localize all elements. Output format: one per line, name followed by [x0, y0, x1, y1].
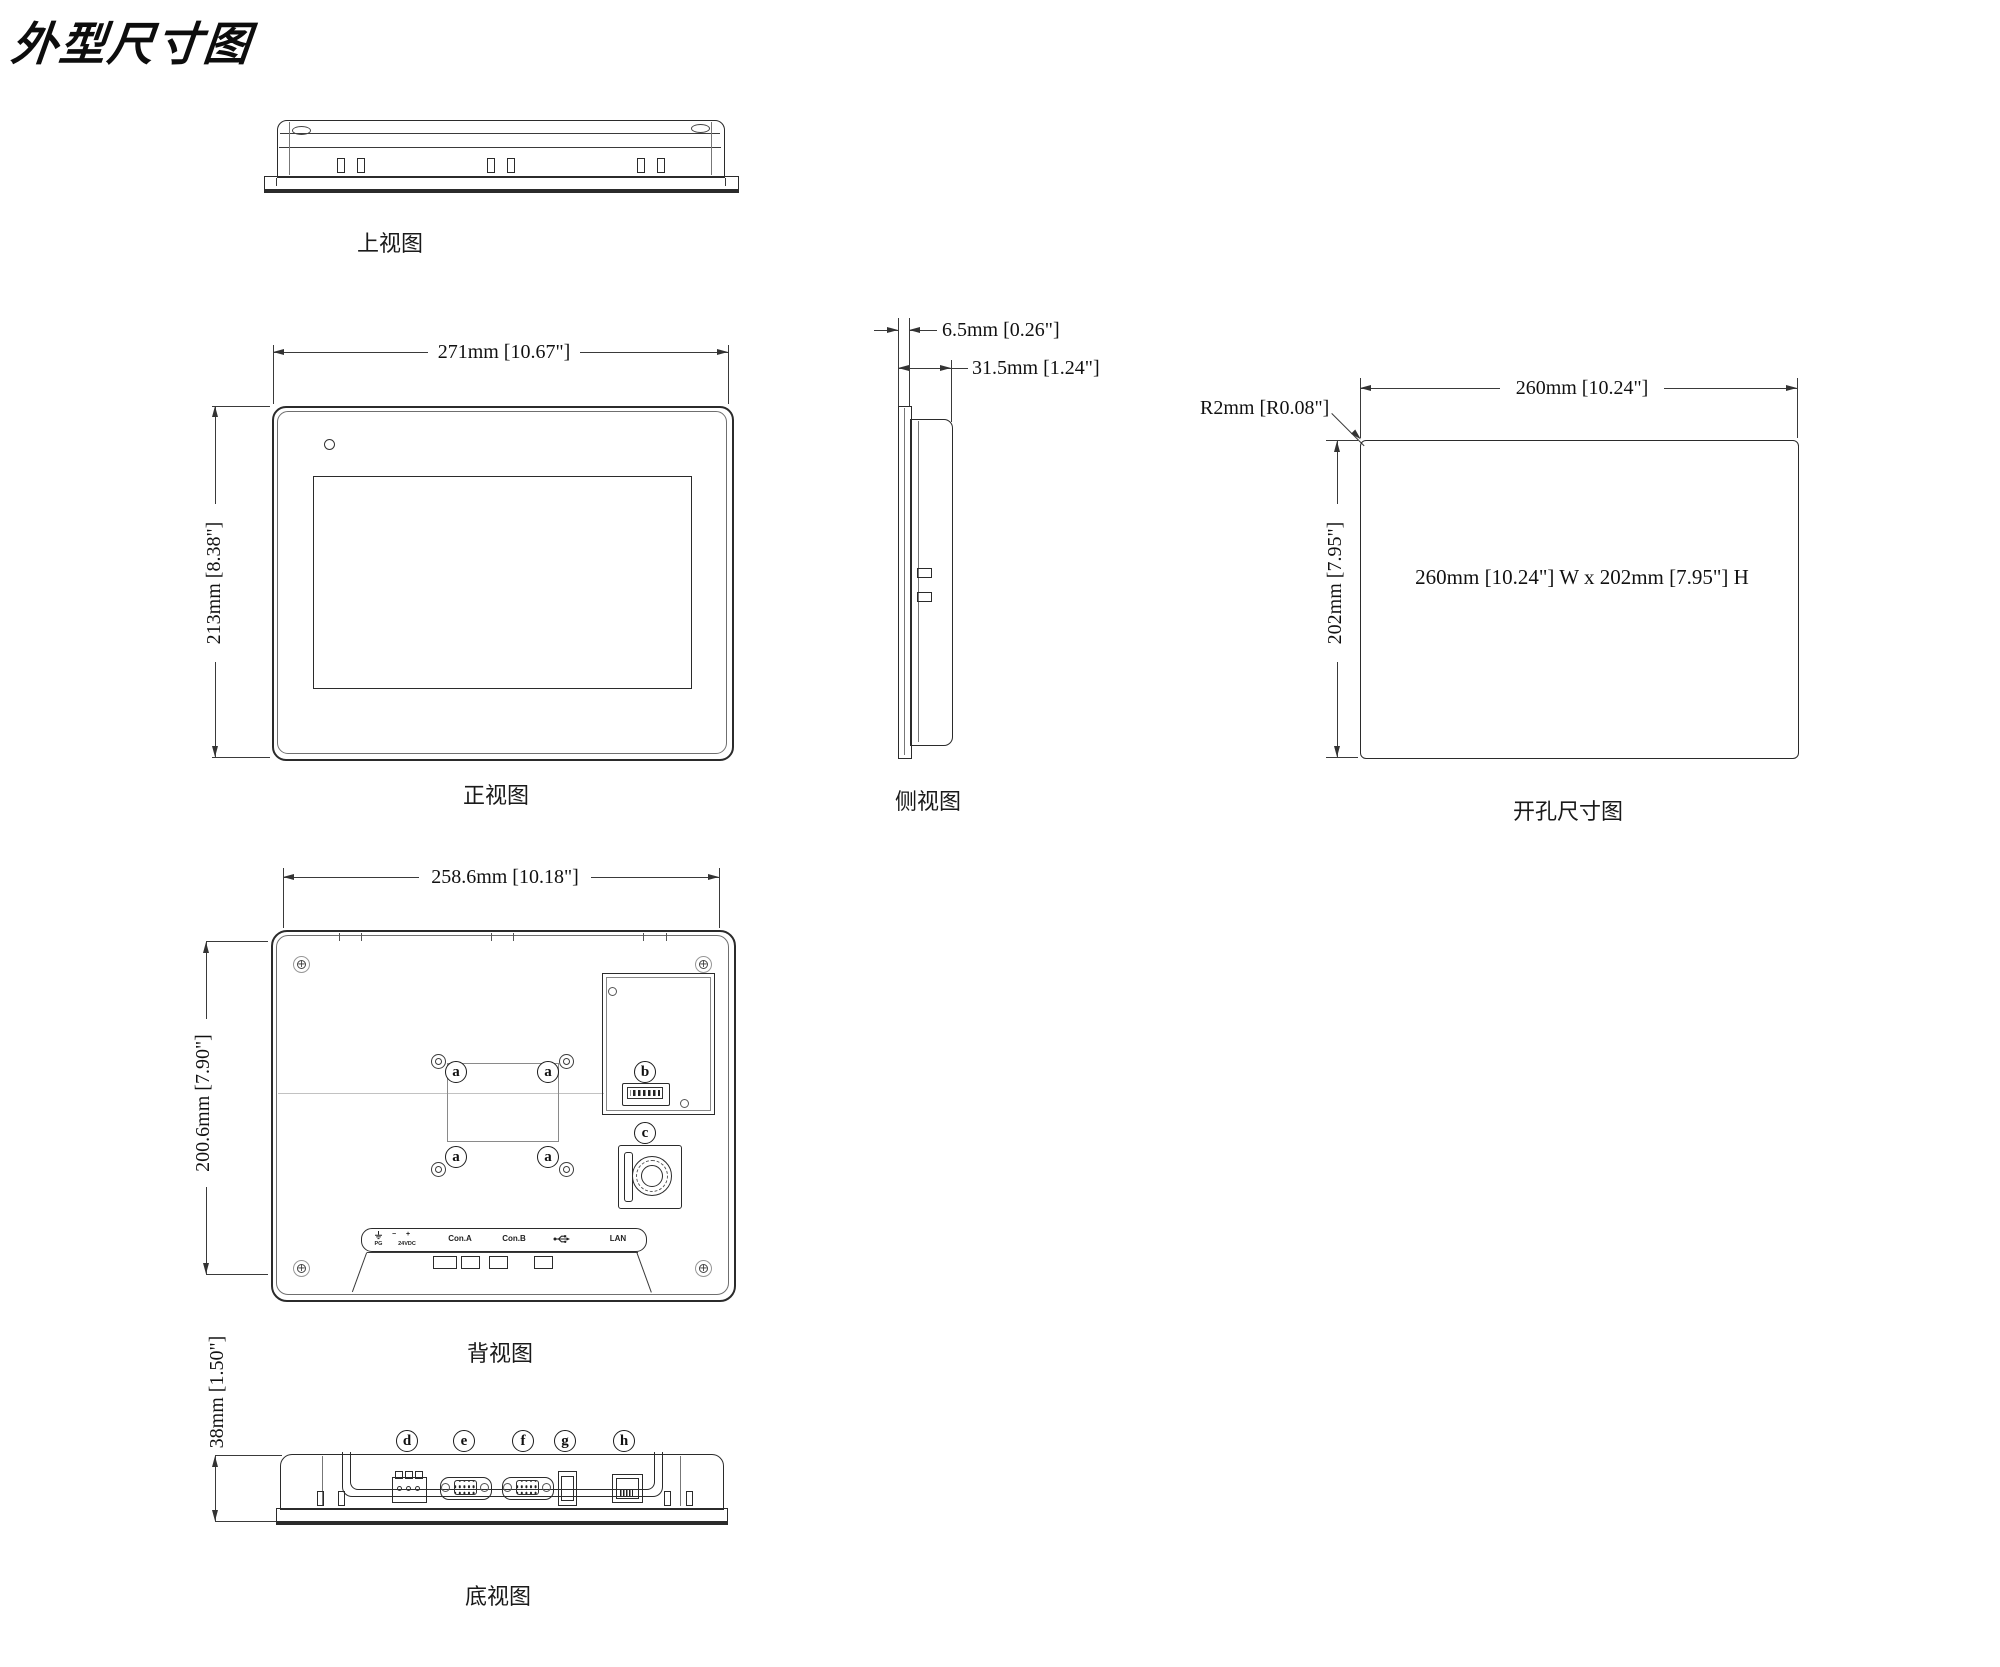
top-view-seam-line — [280, 133, 720, 134]
side-vent-slot — [917, 568, 932, 578]
power-terminal-pin — [405, 1471, 413, 1479]
arrowhead — [212, 406, 218, 417]
side-bezel-dim: 6.5mm [0.26"] — [938, 319, 1064, 341]
arrowhead — [283, 874, 294, 880]
top-view-flange-step — [276, 178, 277, 186]
mount-slot — [317, 1491, 324, 1506]
extension-line — [719, 868, 720, 928]
top-view-screw-slot — [691, 124, 710, 133]
callout-a: a — [537, 1146, 559, 1168]
lan-label: LAN — [598, 1235, 638, 1243]
arrowhead — [203, 942, 209, 953]
arrowhead — [212, 1456, 218, 1467]
plus-label: + — [406, 1231, 410, 1239]
vent-tick — [339, 933, 340, 941]
side-vent-slot — [917, 592, 932, 602]
mount-slot — [664, 1491, 671, 1506]
vent-slot — [487, 158, 495, 173]
vent-tick — [361, 933, 362, 941]
back-height-dim: 200.6mm [7.90"] — [192, 1019, 214, 1187]
callout-g: g — [554, 1430, 576, 1452]
extension-line — [728, 345, 729, 404]
top-view-label: 上视图 — [330, 226, 450, 258]
rotary-dial-center — [641, 1165, 663, 1187]
terminal-hole — [406, 1486, 411, 1491]
top-view-seam-line — [279, 147, 721, 148]
db9-pin-field — [516, 1480, 539, 1495]
power-terminal-pin — [395, 1471, 403, 1479]
arrowhead — [717, 349, 728, 355]
arrowhead — [273, 349, 284, 355]
cutout-height-dim: 202mm [7.95"] — [1324, 504, 1346, 662]
arrowhead — [1786, 385, 1797, 391]
extension-line — [1326, 757, 1358, 758]
side-view-label: 侧视图 — [868, 784, 988, 816]
bottom-end-seam — [680, 1456, 681, 1506]
tray-edge — [367, 1252, 638, 1253]
cutout-radius-dim: R2mm [R0.08"] — [1196, 397, 1333, 419]
vesa-hole — [431, 1162, 446, 1177]
pg-label: PG — [372, 1241, 385, 1247]
vent-tick — [666, 933, 667, 941]
db9-screw — [480, 1483, 489, 1492]
terminal-hole — [415, 1486, 420, 1491]
arrowhead — [212, 1510, 218, 1521]
minus-label: − — [392, 1231, 396, 1239]
arrowhead — [887, 327, 898, 333]
usb-icon — [553, 1234, 571, 1244]
back-width-dim: 258.6mm [10.18"] — [419, 866, 591, 888]
arrowhead — [1334, 441, 1340, 452]
vent-slot — [637, 158, 645, 173]
dip-switch-teeth — [627, 1087, 663, 1099]
db9-screw — [542, 1483, 551, 1492]
back-view-label: 背视图 — [440, 1336, 560, 1368]
connector-cutout — [433, 1256, 457, 1269]
extension-line — [1797, 378, 1798, 438]
callout-d: d — [396, 1430, 418, 1452]
arrowhead — [898, 365, 909, 371]
corner-screw-icon — [293, 1260, 310, 1277]
callout-a: a — [445, 1146, 467, 1168]
panel-screw-icon — [680, 1099, 689, 1108]
connector-cutout — [534, 1256, 553, 1269]
cutout-outline — [1360, 440, 1799, 759]
power-terminal-labels: − + PG 24VDC — [372, 1231, 430, 1248]
power-terminal-pin — [415, 1471, 423, 1479]
cutout-note: 260mm [10.24"] W x 202mm [7.95"] H — [1378, 566, 1786, 588]
extension-line — [951, 360, 952, 422]
arrowhead — [203, 1263, 209, 1274]
extension-line — [206, 1274, 268, 1275]
cutout-view-label: 开孔尺寸图 — [1488, 794, 1648, 826]
vesa-hole — [559, 1162, 574, 1177]
side-depth-dim: 31.5mm [1.24"] — [968, 357, 1104, 379]
top-view-end-seam — [711, 122, 712, 175]
usb-port-tongue — [561, 1476, 574, 1501]
front-view-label: 正视图 — [436, 778, 556, 810]
arrowhead — [940, 365, 951, 371]
con-b-label: Con.B — [494, 1235, 534, 1243]
db9-pin-field — [454, 1480, 477, 1495]
cutout-width-dim: 260mm [10.24"] — [1500, 377, 1664, 399]
connector-cutout — [489, 1256, 508, 1269]
vesa-hole — [431, 1054, 446, 1069]
callout-e: e — [453, 1430, 475, 1452]
vent-slot — [337, 158, 345, 173]
callout-c: c — [634, 1122, 656, 1144]
top-view-flange-step — [725, 178, 726, 186]
vent-slot — [507, 158, 515, 173]
front-height-dim: 213mm [8.38"] — [203, 504, 225, 662]
vent-tick — [643, 933, 644, 941]
callout-a: a — [537, 1061, 559, 1083]
dimension-drawing-page: 外型尺寸图 上视图 271mm [10.67"] — [0, 0, 2000, 1667]
side-rear-seam — [918, 421, 919, 742]
corner-screw-icon — [293, 956, 310, 973]
rj45-pins — [620, 1490, 633, 1496]
arrowhead — [909, 327, 920, 333]
corner-screw-icon — [695, 1260, 712, 1277]
extension-line — [212, 757, 270, 758]
connector-cutout — [461, 1256, 480, 1269]
arrowhead — [708, 874, 719, 880]
display-screen-outline — [313, 476, 692, 689]
mount-slot — [338, 1491, 345, 1506]
callout-b: b — [634, 1061, 656, 1083]
vent-tick — [491, 933, 492, 941]
db9-screw — [503, 1483, 512, 1492]
arrowhead — [1360, 385, 1371, 391]
side-rear-housing — [910, 419, 953, 746]
mount-slot — [686, 1491, 693, 1506]
front-width-dim: 271mm [10.67"] — [428, 341, 580, 363]
extension-line — [898, 318, 899, 406]
extension-line — [212, 406, 270, 407]
page-title: 外型尺寸图 — [9, 8, 256, 74]
panel-screw-icon — [608, 987, 617, 996]
arrowhead — [1334, 746, 1340, 757]
bottom-view-label: 底视图 — [438, 1579, 558, 1611]
callout-a: a — [445, 1061, 467, 1083]
arrowhead — [212, 746, 218, 757]
top-view-screw-slot — [292, 126, 311, 135]
top-view-end-seam — [289, 122, 290, 175]
extension-line — [1326, 440, 1358, 441]
vesa-hole — [559, 1054, 574, 1069]
led-indicator — [324, 439, 335, 450]
con-a-label: Con.A — [440, 1235, 480, 1243]
corner-screw-icon — [695, 956, 712, 973]
vdc-label: 24VDC — [387, 1241, 427, 1247]
bottom-flange — [276, 1508, 728, 1525]
callout-h: h — [613, 1430, 635, 1452]
terminal-hole — [397, 1486, 402, 1491]
extension-line — [215, 1521, 278, 1522]
db9-screw — [441, 1483, 450, 1492]
bottom-height-dim: 38mm [1.50"] — [206, 1313, 228, 1471]
vent-tick — [513, 933, 514, 941]
extension-line — [215, 1455, 282, 1456]
ground-icon — [374, 1231, 383, 1240]
extension-line — [206, 941, 268, 942]
top-view-flange — [264, 176, 739, 193]
side-bezel-seam — [904, 408, 905, 755]
vent-slot — [657, 158, 665, 173]
callout-f: f — [512, 1430, 534, 1452]
vent-slot — [357, 158, 365, 173]
